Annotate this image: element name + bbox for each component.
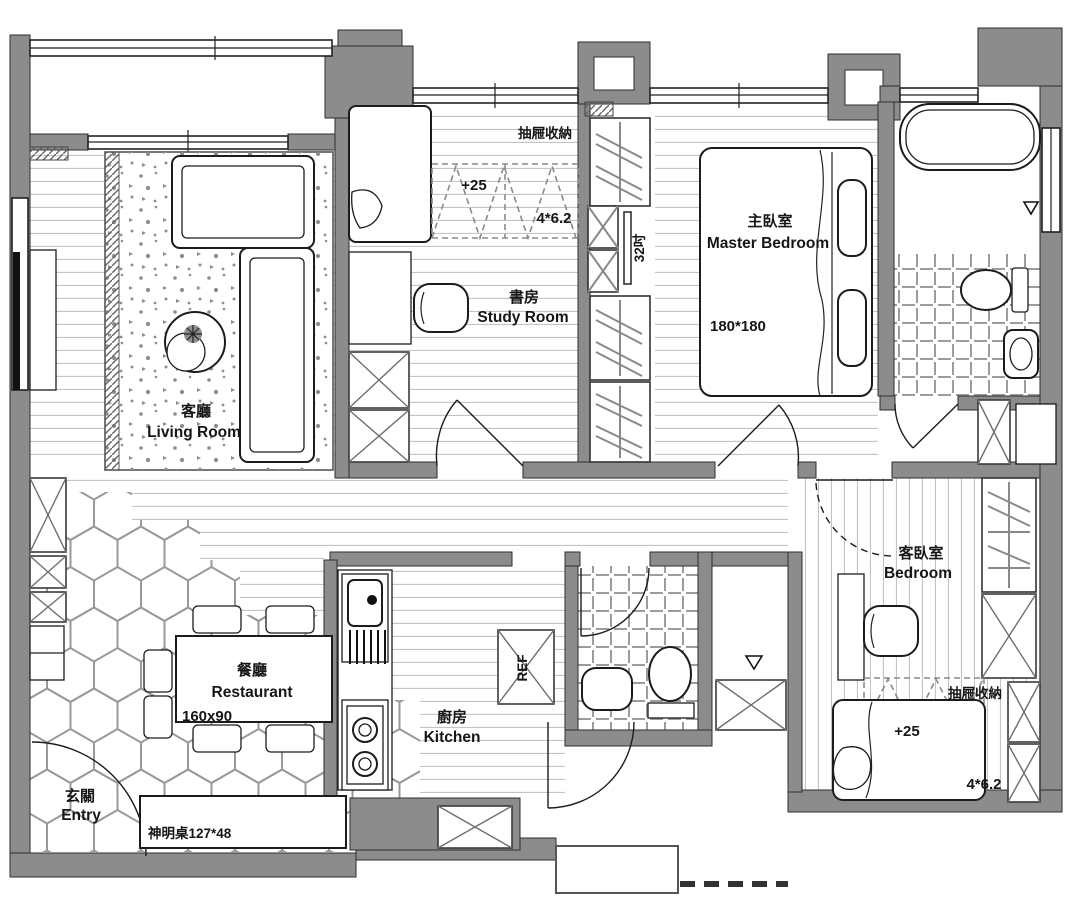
side-table [165,312,225,372]
kitchen-sink [342,574,388,664]
wardrobe-section-3 [590,382,650,462]
guest-xbox-3 [1008,744,1040,802]
fridge-label: REF [515,655,530,682]
wardrobe-section-2 [590,296,650,380]
hall-xbox [978,400,1010,464]
guest-label-en: Bedroom [884,565,952,582]
bath-right-window [1042,128,1060,232]
hall-cabinet [1016,404,1056,464]
tv-32in [624,212,631,284]
wardrobe-section-1 [590,118,650,206]
wardrobe-xbox-2 [588,250,618,292]
study-storage-label: 抽屜收納 [518,125,572,141]
master-label-en: Master Bedroom [707,235,829,252]
master-bed [700,148,872,396]
hall-cabinet-3 [30,592,66,622]
master-label-zh: 主臥室 [747,212,792,230]
guest-storage-size: 4*6.2 [966,776,1001,793]
guest-wardrobe [982,478,1036,592]
guest-label-zh: 客臥室 [897,544,943,562]
living-label-zh: 客廳 [180,402,211,420]
living-label-en: Living Room [147,424,241,441]
guest-bed [833,700,985,800]
hall-cabinet-1 [30,478,66,552]
entry-label-zh: 玄關 [65,787,95,805]
bath-top-window [900,88,978,102]
entry-label-en: Entry [61,807,101,824]
study-label-en: Study Room [477,309,568,326]
study-cabinet-2 [349,410,409,462]
hatch-wall-top [585,102,613,116]
main-toilet [961,268,1028,312]
guest-storage-level: +25 [894,723,919,740]
bath2-toilet [648,647,694,718]
wardrobe-xbox-1 [588,206,618,248]
floor-plan-canvas: 客廳 Living Room 書房 Study Room 抽屜收納 +25 4*… [0,0,1080,909]
guest-storage-label: 抽屜收納 [948,685,1002,701]
hall-cabinet-2 [30,556,66,588]
shoe-cabinet [438,806,512,848]
tv-size-label: 32吋 [632,233,647,262]
dining-table-size: 160x90 [182,708,232,725]
hatch-wall-left [30,147,68,160]
master-bed-size: 180*180 [710,318,766,335]
altar-label: 神明桌127*48 [148,825,232,841]
laundry-xbox [716,680,786,730]
hall-shelf [30,626,64,680]
main-sink [1004,330,1038,378]
kitchen-label-zh: 廚房 [437,708,467,726]
dining-label-en: Restaurant [212,684,293,701]
shower-symbol-2 [746,656,762,669]
kitchen-stove [342,700,388,790]
main-bath-door [895,404,958,448]
master-bedroom: 主臥室 Master Bedroom 180*180 [700,148,872,396]
tv [13,250,56,390]
bottom-step-outline [556,846,678,893]
dining-label-zh: 餐廳 [237,661,267,679]
kitchen-label-en: Kitchen [424,729,481,746]
study-storage-size: 4*6.2 [536,210,571,227]
study-storage-level: +25 [461,177,486,194]
study-cabinet-1 [349,352,409,408]
bath2-sink [582,668,632,710]
guest-xbox-1 [982,594,1036,678]
shower-symbol-main [1024,202,1038,214]
bathtub [900,104,1040,170]
wardrobe-column: 32吋 [588,118,650,462]
study-label-zh: 書房 [509,288,539,306]
balcony-top-window [30,36,332,60]
guest-xbox-2 [1008,682,1040,742]
study-bed [349,106,431,242]
